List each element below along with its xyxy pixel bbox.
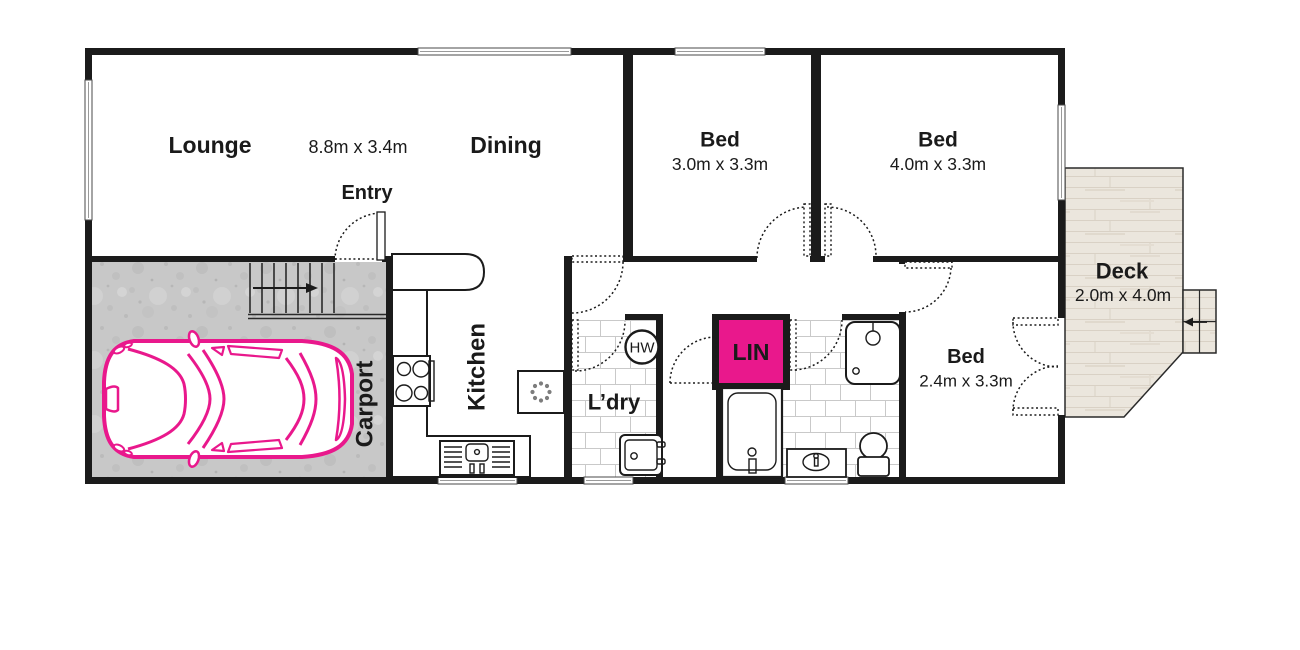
label-entry: Entry: [341, 182, 393, 204]
stove-icon: [393, 356, 434, 406]
label-bed2-dims: 4.0m x 3.3m: [890, 154, 986, 174]
label-deck: Deck: [1096, 259, 1149, 284]
bed1-door: [757, 204, 810, 258]
hall-door: [572, 256, 623, 313]
wc-door: [670, 337, 716, 383]
label-kitchen: Kitchen: [464, 323, 491, 411]
bath-icon: [722, 388, 782, 477]
label-bed2: Bed: [918, 129, 958, 152]
car-icon: [104, 330, 352, 468]
bed2-door: [825, 204, 876, 256]
vanity-icon: [787, 449, 846, 477]
toilet-icon: [858, 433, 889, 476]
label-deck-dims: 2.0m x 4.0m: [1075, 285, 1171, 305]
fan-appliance-icon: [518, 371, 564, 413]
label-bed3: Bed: [947, 346, 985, 368]
shower-icon: [846, 322, 900, 384]
french-doors-deck: [1013, 318, 1058, 415]
label-laundry: L’dry: [588, 390, 641, 415]
bed3-door: [905, 262, 952, 312]
label-bed1: Bed: [700, 129, 740, 152]
label-linen: LIN: [732, 339, 769, 365]
label-dining: Dining: [470, 132, 542, 158]
deck-steps-icon: [1183, 290, 1216, 353]
kitchen-sink-icon: [440, 441, 514, 475]
label-bed3-dims: 2.4m x 3.3m: [919, 372, 1013, 391]
entry-door: [335, 212, 385, 260]
floor-plan-drawing: Lounge 8.8m x 3.4m Dining Entry Bed 3.0m…: [0, 0, 1300, 650]
label-lounge: Lounge: [168, 132, 251, 158]
label-lounge-dining-dims: 8.8m x 3.4m: [308, 137, 407, 157]
label-carport: Carport: [352, 361, 379, 448]
label-bed1-dims: 3.0m x 3.3m: [672, 154, 768, 174]
floor-plan: Lounge 8.8m x 3.4m Dining Entry Bed 3.0m…: [0, 0, 1300, 650]
laundry-trough-icon: [620, 435, 665, 475]
label-hot-water: HW: [630, 340, 656, 357]
